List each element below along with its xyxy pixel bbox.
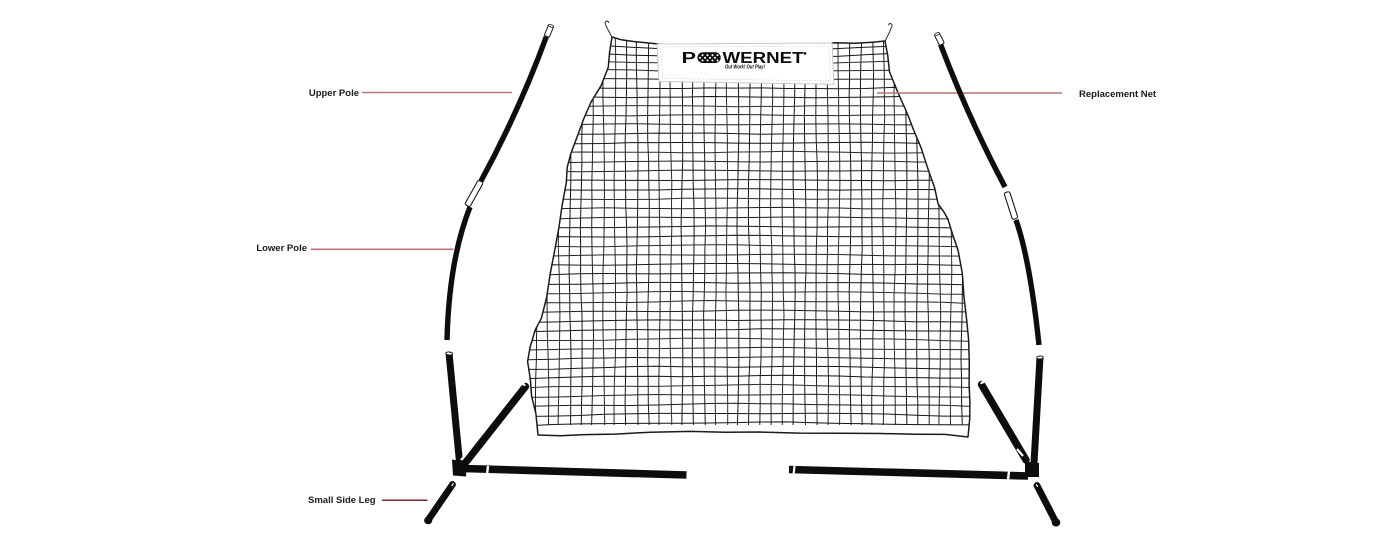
svg-text:Upper Pole: Upper Pole	[309, 88, 359, 99]
svg-text:Small Side Leg: Small Side Leg	[308, 495, 376, 506]
svg-text:Out Work! Out Play!: Out Work! Out Play!	[725, 65, 765, 71]
svg-text:P: P	[682, 50, 697, 67]
svg-text:Lower Pole: Lower Pole	[256, 243, 307, 254]
svg-text:Replacement Net: Replacement Net	[1079, 89, 1157, 100]
